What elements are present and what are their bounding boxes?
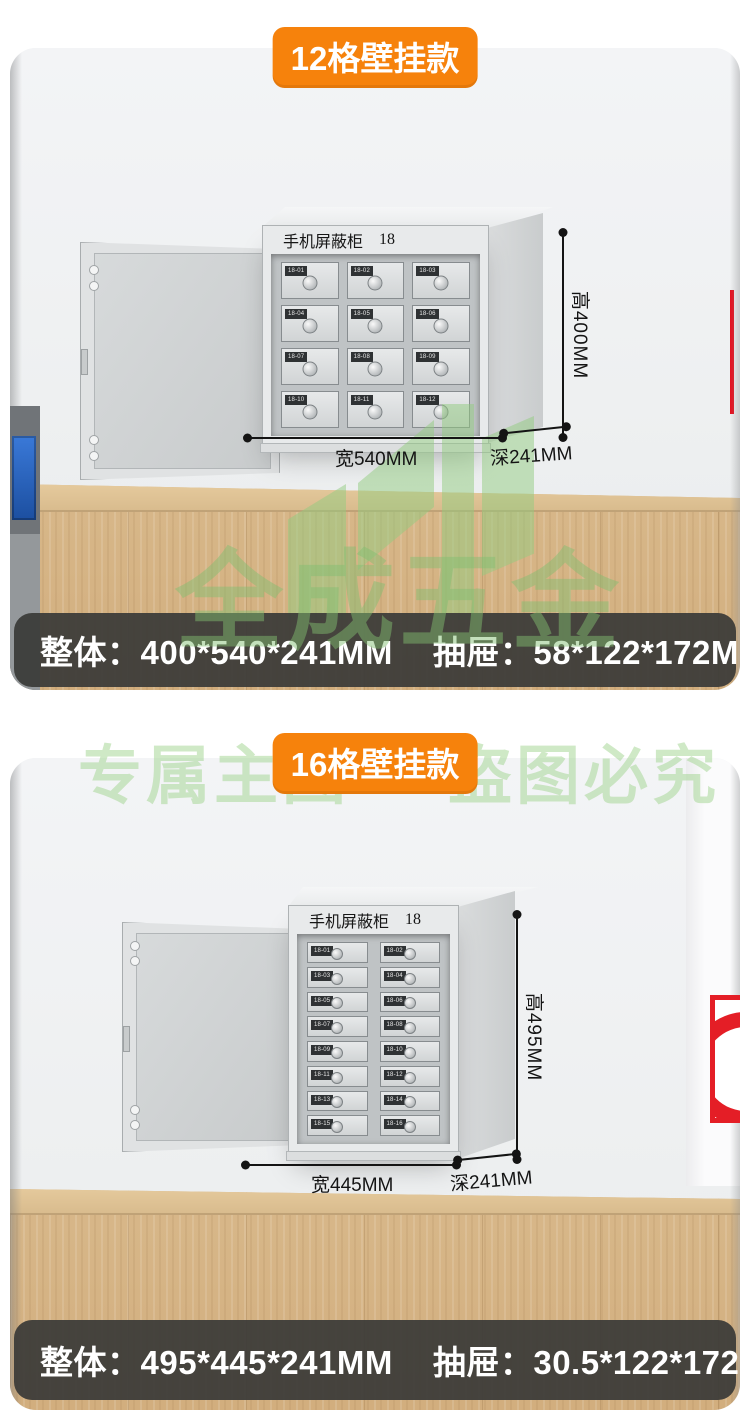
cabinet-side-face bbox=[487, 213, 543, 443]
width-dimension-line bbox=[245, 1164, 457, 1166]
drawer-18-05[interactable]: 18-05 bbox=[307, 992, 368, 1013]
drawer-18-05[interactable]: 18-05 bbox=[347, 305, 405, 342]
depth-dimension-label: 深241MM bbox=[489, 438, 573, 471]
fire-alarm-sign bbox=[710, 995, 740, 1123]
drawer-lock-icon bbox=[331, 973, 343, 985]
drawer-18-01[interactable]: 18-01 bbox=[281, 262, 339, 299]
drawer-lock-icon bbox=[404, 948, 416, 960]
cabinet-number: 18 bbox=[379, 231, 395, 249]
right-edge-shade bbox=[730, 48, 740, 690]
section-16-grid: 手机屏蔽柜 18 18-0118-0218-0318-0418-0518-061… bbox=[10, 758, 740, 1410]
drawer-18-06[interactable]: 18-06 bbox=[380, 992, 441, 1013]
door-hinge-dot bbox=[130, 956, 140, 966]
open-door[interactable] bbox=[122, 922, 298, 1152]
overall-spec: 整体： 495*445*241MM bbox=[40, 1336, 393, 1384]
drawer-lock-icon bbox=[302, 405, 317, 420]
drawer-18-11[interactable]: 18-11 bbox=[347, 391, 405, 428]
drawer-lock-icon bbox=[434, 276, 449, 291]
drawer-18-08[interactable]: 18-08 bbox=[347, 348, 405, 385]
drawer-number-label: 18-05 bbox=[351, 309, 373, 319]
drawer-18-02[interactable]: 18-02 bbox=[347, 262, 405, 299]
drawer-number-label: 18-11 bbox=[351, 395, 373, 405]
drawer-lock-icon bbox=[302, 319, 317, 334]
height-dimension-line: 高400MM bbox=[562, 232, 564, 438]
overall-spec-value: 495*445*241MM bbox=[141, 1344, 393, 1382]
drawer-lock-icon bbox=[404, 1072, 416, 1084]
drawer-number-label: 18-09 bbox=[416, 352, 438, 362]
drawer-number-label: 18-13 bbox=[311, 1095, 333, 1105]
drawer-lock-icon bbox=[331, 1121, 343, 1133]
drawer-18-04[interactable]: 18-04 bbox=[380, 967, 441, 988]
drawer-number-label: 18-12 bbox=[416, 395, 438, 405]
drawer-number-label: 18-07 bbox=[311, 1020, 333, 1030]
drawer-spec-value: 30.5*122*172MM bbox=[533, 1344, 740, 1382]
drawer-number-label: 18-06 bbox=[416, 309, 438, 319]
drawer-lock-icon bbox=[368, 276, 383, 291]
section-12-grid: 手机屏蔽柜 18 18-0118-0218-0318-0418-0518-061… bbox=[10, 48, 740, 690]
drawer-lock-icon bbox=[404, 973, 416, 985]
drawer-18-02[interactable]: 18-02 bbox=[380, 942, 441, 963]
drawer-18-07[interactable]: 18-07 bbox=[307, 1016, 368, 1037]
door-latch bbox=[81, 349, 88, 375]
monitor-screen bbox=[12, 436, 36, 520]
drawer-number-label: 18-08 bbox=[351, 352, 373, 362]
cabinet-header: 手机屏蔽柜 18 bbox=[263, 226, 488, 253]
drawer-lock-icon bbox=[404, 997, 416, 1009]
drawer-number-label: 18-10 bbox=[384, 1045, 406, 1055]
drawer-number-label: 18-03 bbox=[416, 266, 438, 276]
drawer-lock-icon bbox=[331, 1072, 343, 1084]
drawer-number-label: 18-02 bbox=[351, 266, 373, 276]
drawer-spec-label: 抽屉： bbox=[433, 1336, 534, 1384]
drawer-lock-icon bbox=[404, 1047, 416, 1059]
drawer-18-15[interactable]: 18-15 bbox=[307, 1115, 368, 1136]
drawer-number-label: 18-16 bbox=[384, 1119, 406, 1129]
door-hinge-dot bbox=[89, 281, 99, 291]
door-hinge-dot bbox=[89, 435, 99, 445]
drawer-number-label: 18-15 bbox=[311, 1119, 333, 1129]
drawer-number-label: 18-09 bbox=[311, 1045, 333, 1055]
cabinet-title: 手机屏蔽柜 bbox=[283, 228, 363, 252]
width-dimension-label: 宽445MM bbox=[311, 1170, 393, 1197]
drawer-18-06[interactable]: 18-06 bbox=[412, 305, 470, 342]
drawer-lock-icon bbox=[331, 1022, 343, 1034]
drawer-number-label: 18-12 bbox=[384, 1070, 406, 1080]
height-dimension-line: 高495MM bbox=[516, 914, 518, 1160]
drawer-number-label: 18-04 bbox=[285, 309, 307, 319]
drawer-lock-icon bbox=[302, 276, 317, 291]
drawer-18-09[interactable]: 18-09 bbox=[412, 348, 470, 385]
door-latch bbox=[123, 1026, 130, 1052]
door-inner-panel bbox=[136, 933, 289, 1141]
drawer-18-12[interactable]: 18-12 bbox=[380, 1066, 441, 1087]
page: 手机屏蔽柜 18 18-0118-0218-0318-0418-0518-061… bbox=[0, 0, 750, 1414]
door-hinge-dot bbox=[89, 265, 99, 275]
drawer-lock-icon bbox=[368, 319, 383, 334]
overall-spec-label: 整体： bbox=[40, 626, 141, 674]
drawer-18-09[interactable]: 18-09 bbox=[307, 1041, 368, 1062]
drawer-number-label: 18-07 bbox=[285, 352, 307, 362]
drawer-spec: 抽屉： 30.5*122*172MM bbox=[433, 1336, 740, 1384]
height-dimension-label: 高495MM bbox=[522, 993, 549, 1081]
drawer-number-label: 18-11 bbox=[311, 1070, 333, 1080]
drawer-lock-icon bbox=[331, 1096, 343, 1108]
drawer-18-04[interactable]: 18-04 bbox=[281, 305, 339, 342]
drawer-18-16[interactable]: 18-16 bbox=[380, 1115, 441, 1136]
badge-12-grid: 12格壁挂款 bbox=[273, 27, 478, 88]
drawer-lock-icon bbox=[404, 1096, 416, 1108]
drawer-18-10[interactable]: 18-10 bbox=[380, 1041, 441, 1062]
door-hinge-dot bbox=[130, 1120, 140, 1130]
drawer-18-03[interactable]: 18-03 bbox=[307, 967, 368, 988]
drawer-18-08[interactable]: 18-08 bbox=[380, 1016, 441, 1037]
drawer-number-label: 18-06 bbox=[384, 996, 406, 1006]
red-ring-icon bbox=[710, 1012, 740, 1123]
drawer-number-label: 18-04 bbox=[384, 971, 406, 981]
drawer-number-label: 18-14 bbox=[384, 1095, 406, 1105]
door-hinge-dot bbox=[130, 1105, 140, 1115]
door-hinge-dot bbox=[89, 451, 99, 461]
cabinet-number: 18 bbox=[405, 911, 421, 929]
drawer-lock-icon bbox=[331, 1047, 343, 1059]
cabinet-header: 手机屏蔽柜 18 bbox=[289, 906, 458, 933]
drawer-18-13[interactable]: 18-13 bbox=[307, 1091, 368, 1112]
overall-spec-label: 整体： bbox=[40, 1336, 141, 1384]
width-dimension-label: 宽540MM bbox=[335, 444, 417, 471]
drawer-number-label: 18-03 bbox=[311, 971, 333, 981]
drawer-number-label: 18-01 bbox=[311, 946, 333, 956]
left-edge-shade bbox=[10, 758, 22, 1410]
spec-bar: 整体： 495*445*241MM 抽屉： 30.5*122*172MM bbox=[14, 1320, 736, 1400]
drawer-lock-icon bbox=[302, 362, 317, 377]
brand-watermark-text: 全成五金 bbox=[175, 548, 623, 656]
drawer-lock-icon bbox=[331, 948, 343, 960]
drawer-number-label: 18-10 bbox=[285, 395, 307, 405]
drawer-18-10[interactable]: 18-10 bbox=[281, 391, 339, 428]
drawer-lock-icon bbox=[368, 362, 383, 377]
cabinet-title: 手机屏蔽柜 bbox=[309, 908, 389, 932]
drawer-18-11[interactable]: 18-11 bbox=[307, 1066, 368, 1087]
drawer-18-07[interactable]: 18-07 bbox=[281, 348, 339, 385]
drawer-number-label: 18-05 bbox=[311, 996, 333, 1006]
watermark-tagline-right: 盗图必究 bbox=[448, 744, 720, 808]
door-hinge-dot bbox=[130, 941, 140, 951]
drawer-lock-icon bbox=[434, 362, 449, 377]
cabinet-side-face bbox=[457, 891, 515, 1159]
drawer-18-03[interactable]: 18-03 bbox=[412, 262, 470, 299]
width-dimension-line bbox=[247, 437, 503, 439]
drawer-lock-icon bbox=[331, 997, 343, 1009]
drawer-number-label: 18-08 bbox=[384, 1020, 406, 1030]
drawer-lock-icon bbox=[368, 405, 383, 420]
drawer-lock-icon bbox=[434, 319, 449, 334]
drawer-number-label: 18-01 bbox=[285, 266, 307, 276]
drawer-number-label: 18-02 bbox=[384, 946, 406, 956]
height-dimension-label: 高400MM bbox=[568, 291, 595, 379]
open-door[interactable] bbox=[80, 242, 280, 480]
cabinet-16-grid: 手机屏蔽柜 18 18-0118-0218-0318-0418-0518-061… bbox=[288, 905, 459, 1155]
drawer-18-01[interactable]: 18-01 bbox=[307, 942, 368, 963]
drawer-lock-icon bbox=[404, 1121, 416, 1133]
drawer-grid: 18-0118-0218-0318-0418-0518-0618-0718-08… bbox=[297, 934, 450, 1144]
drawer-lock-icon bbox=[404, 1022, 416, 1034]
badge-16-grid: 16格壁挂款 bbox=[273, 733, 478, 794]
drawer-18-14[interactable]: 18-14 bbox=[380, 1091, 441, 1112]
